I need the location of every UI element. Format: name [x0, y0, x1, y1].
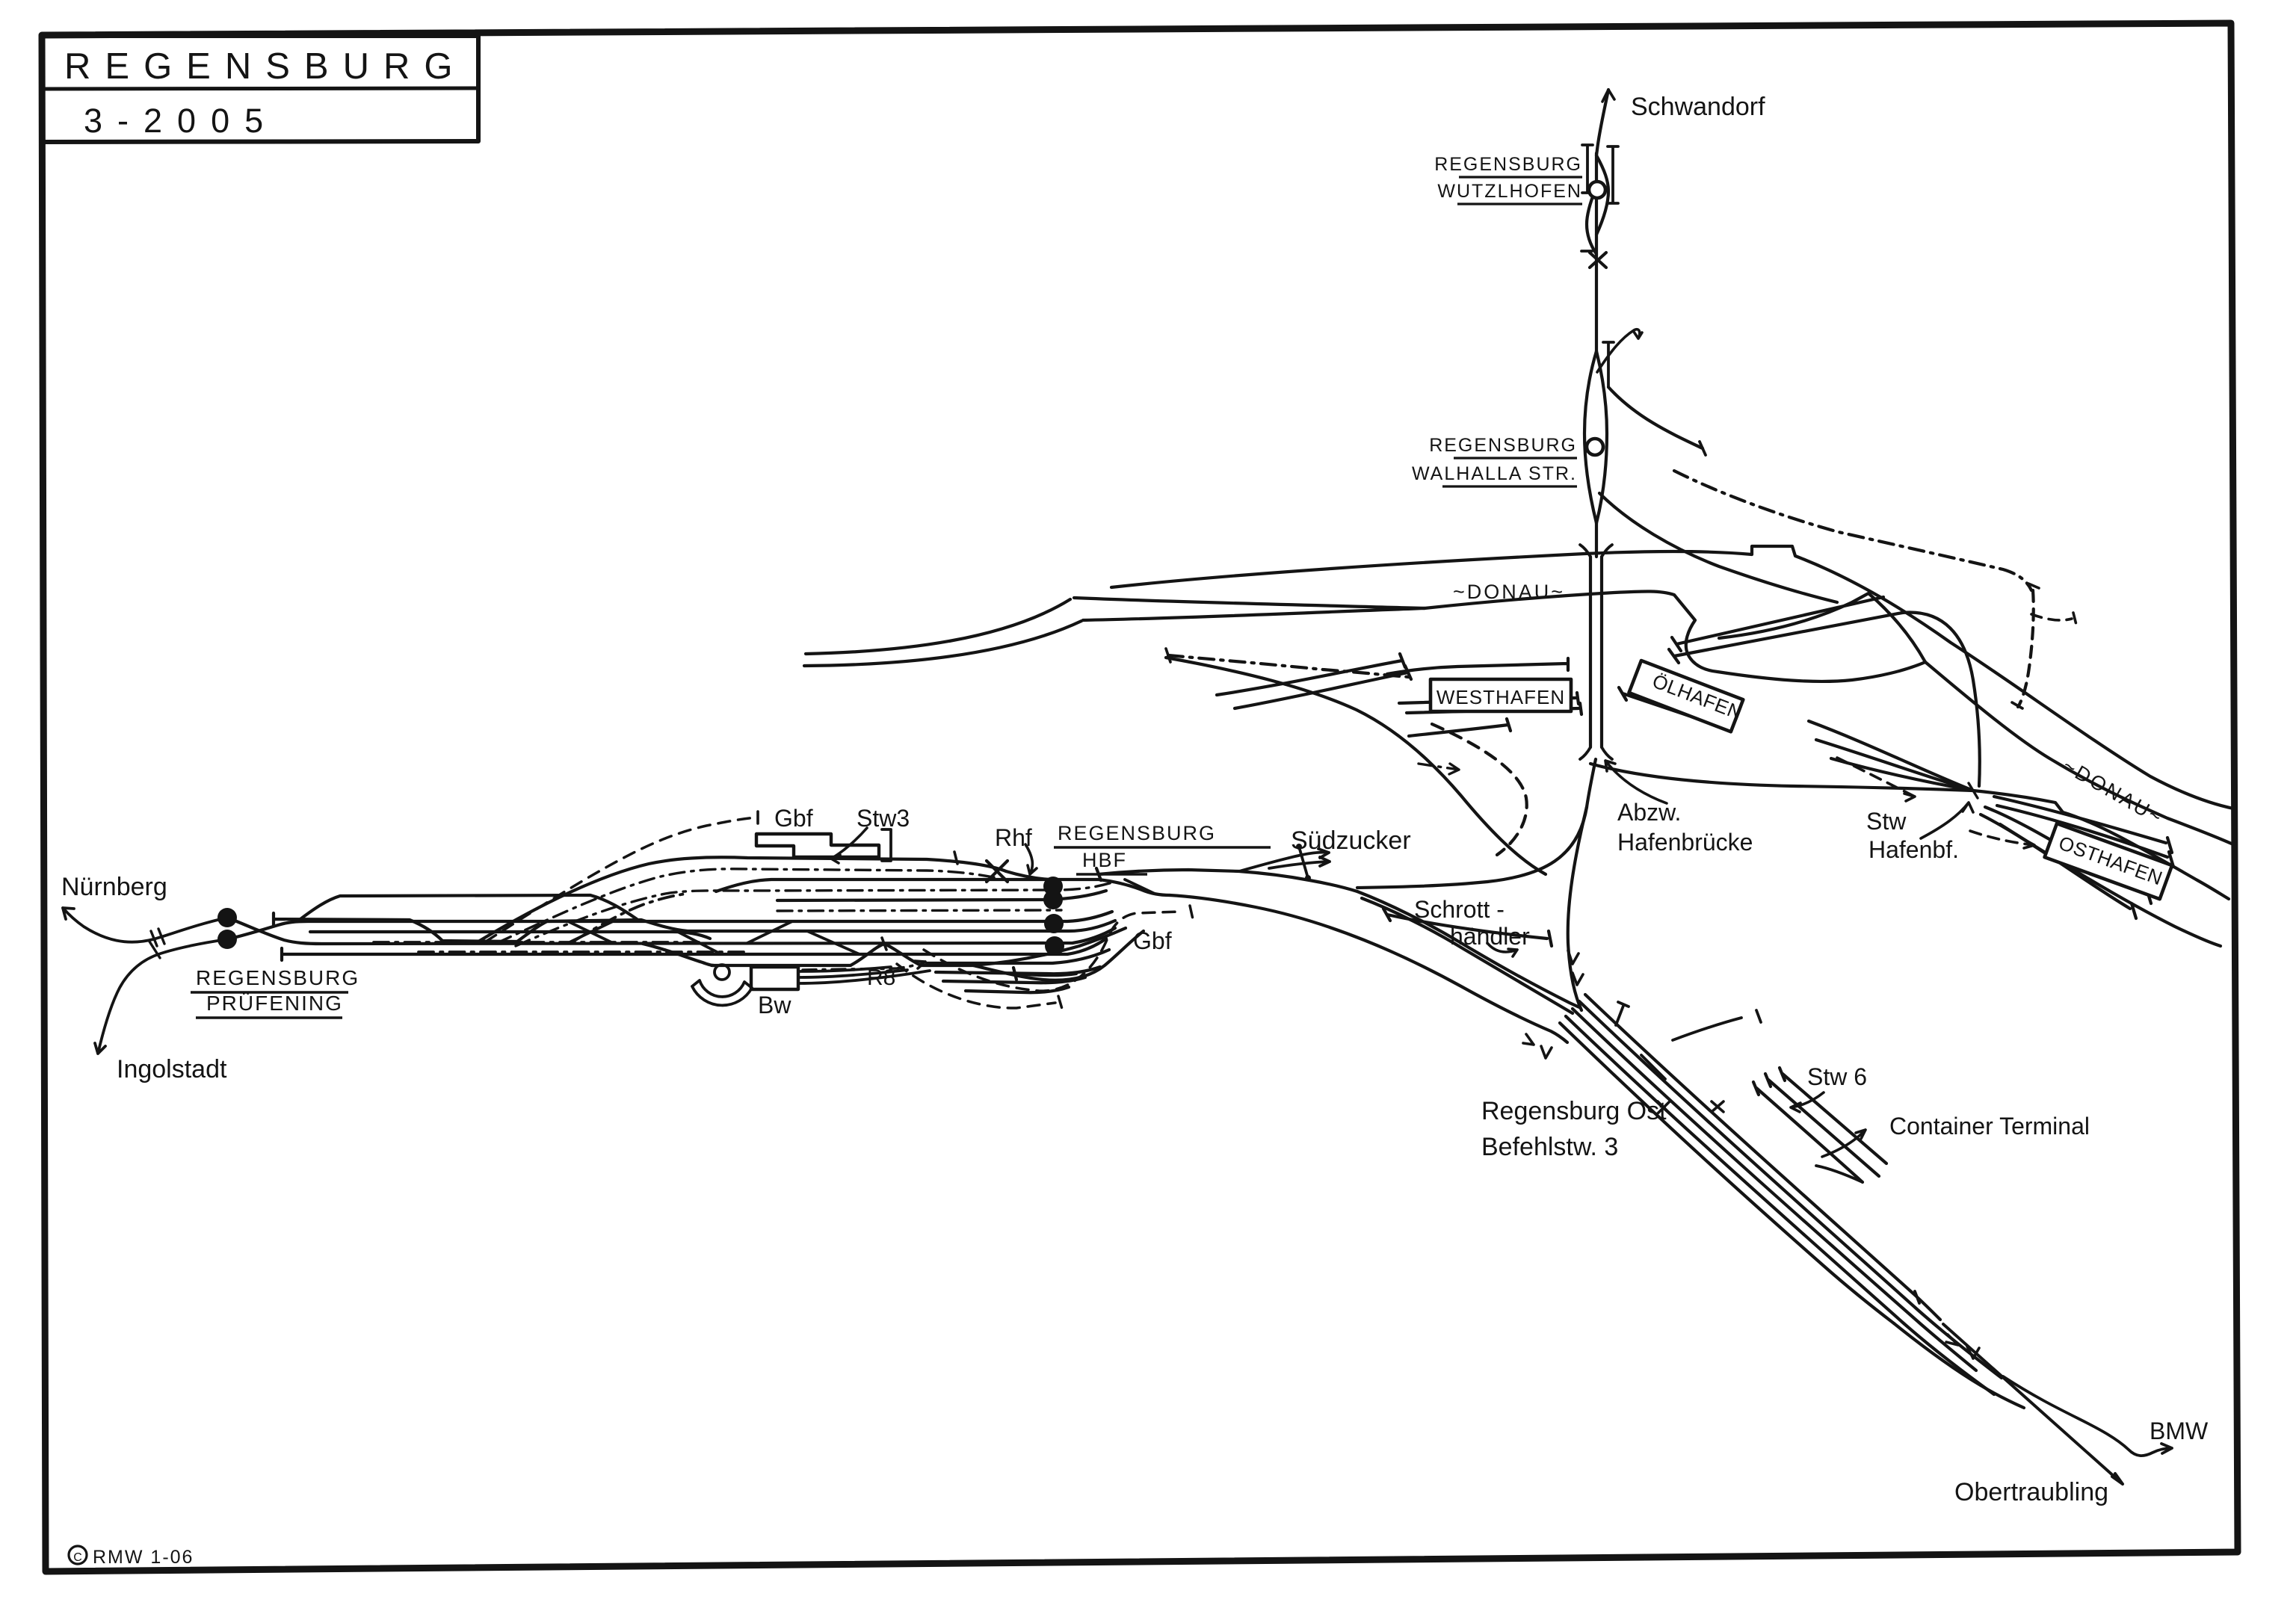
svg-text:Gbf: Gbf — [774, 805, 813, 832]
svg-text:PRÜFENING: PRÜFENING — [206, 992, 343, 1015]
svg-text:Bw: Bw — [758, 992, 791, 1018]
svg-text:WUTZLHOFEN: WUTZLHOFEN — [1437, 181, 1582, 202]
svg-text:REGENSBURG: REGENSBURG — [1434, 154, 1582, 175]
svg-text:REGENSBURG: REGENSBURG — [64, 46, 467, 87]
svg-text:Hafenbrücke: Hafenbrücke — [1617, 829, 1753, 856]
svg-text:Regensburg Ost: Regensburg Ost — [1481, 1097, 1667, 1125]
svg-text:Stw 6: Stw 6 — [1807, 1063, 1867, 1090]
svg-text:Stw: Stw — [1866, 808, 1907, 835]
svg-text:REGENSBURG: REGENSBURG — [1429, 435, 1577, 456]
svg-text:WESTHAFEN: WESTHAFEN — [1436, 686, 1565, 708]
svg-text:Schrott -: Schrott - — [1414, 896, 1505, 923]
svg-text:WALHALLA STR.: WALHALLA STR. — [1412, 463, 1577, 484]
svg-text:Südzucker: Südzucker — [1291, 826, 1411, 855]
svg-text:R8: R8 — [867, 965, 895, 990]
svg-text:Ingolstadt: Ingolstadt — [117, 1055, 227, 1083]
svg-text:Schwandorf: Schwandorf — [1631, 93, 1765, 121]
svg-text:C: C — [73, 1551, 82, 1564]
svg-text:3-2005: 3-2005 — [84, 102, 278, 140]
svg-text:Stw3: Stw3 — [857, 805, 910, 832]
svg-text:Nürnberg: Nürnberg — [61, 873, 167, 901]
svg-text:BMW: BMW — [2150, 1418, 2209, 1444]
svg-text:~DONAU~: ~DONAU~ — [1453, 581, 1565, 603]
svg-text:Obertraubling: Obertraubling — [1954, 1478, 2108, 1506]
svg-text:Hafenbf.: Hafenbf. — [1868, 836, 1959, 863]
svg-text:Gbf: Gbf — [1133, 927, 1172, 954]
svg-text:Abzw.: Abzw. — [1617, 799, 1681, 826]
svg-text:Container Terminal: Container Terminal — [1889, 1113, 2090, 1140]
svg-text:RMW 1-06: RMW 1-06 — [93, 1547, 194, 1568]
svg-text:REGENSBURG: REGENSBURG — [1058, 822, 1216, 844]
svg-text:Rhf: Rhf — [995, 824, 1032, 851]
svg-text:Befehlstw. 3: Befehlstw. 3 — [1481, 1133, 1618, 1161]
svg-text:HBF: HBF — [1082, 849, 1127, 871]
svg-text:händler: händler — [1450, 923, 1530, 950]
svg-text:REGENSBURG: REGENSBURG — [196, 966, 359, 989]
